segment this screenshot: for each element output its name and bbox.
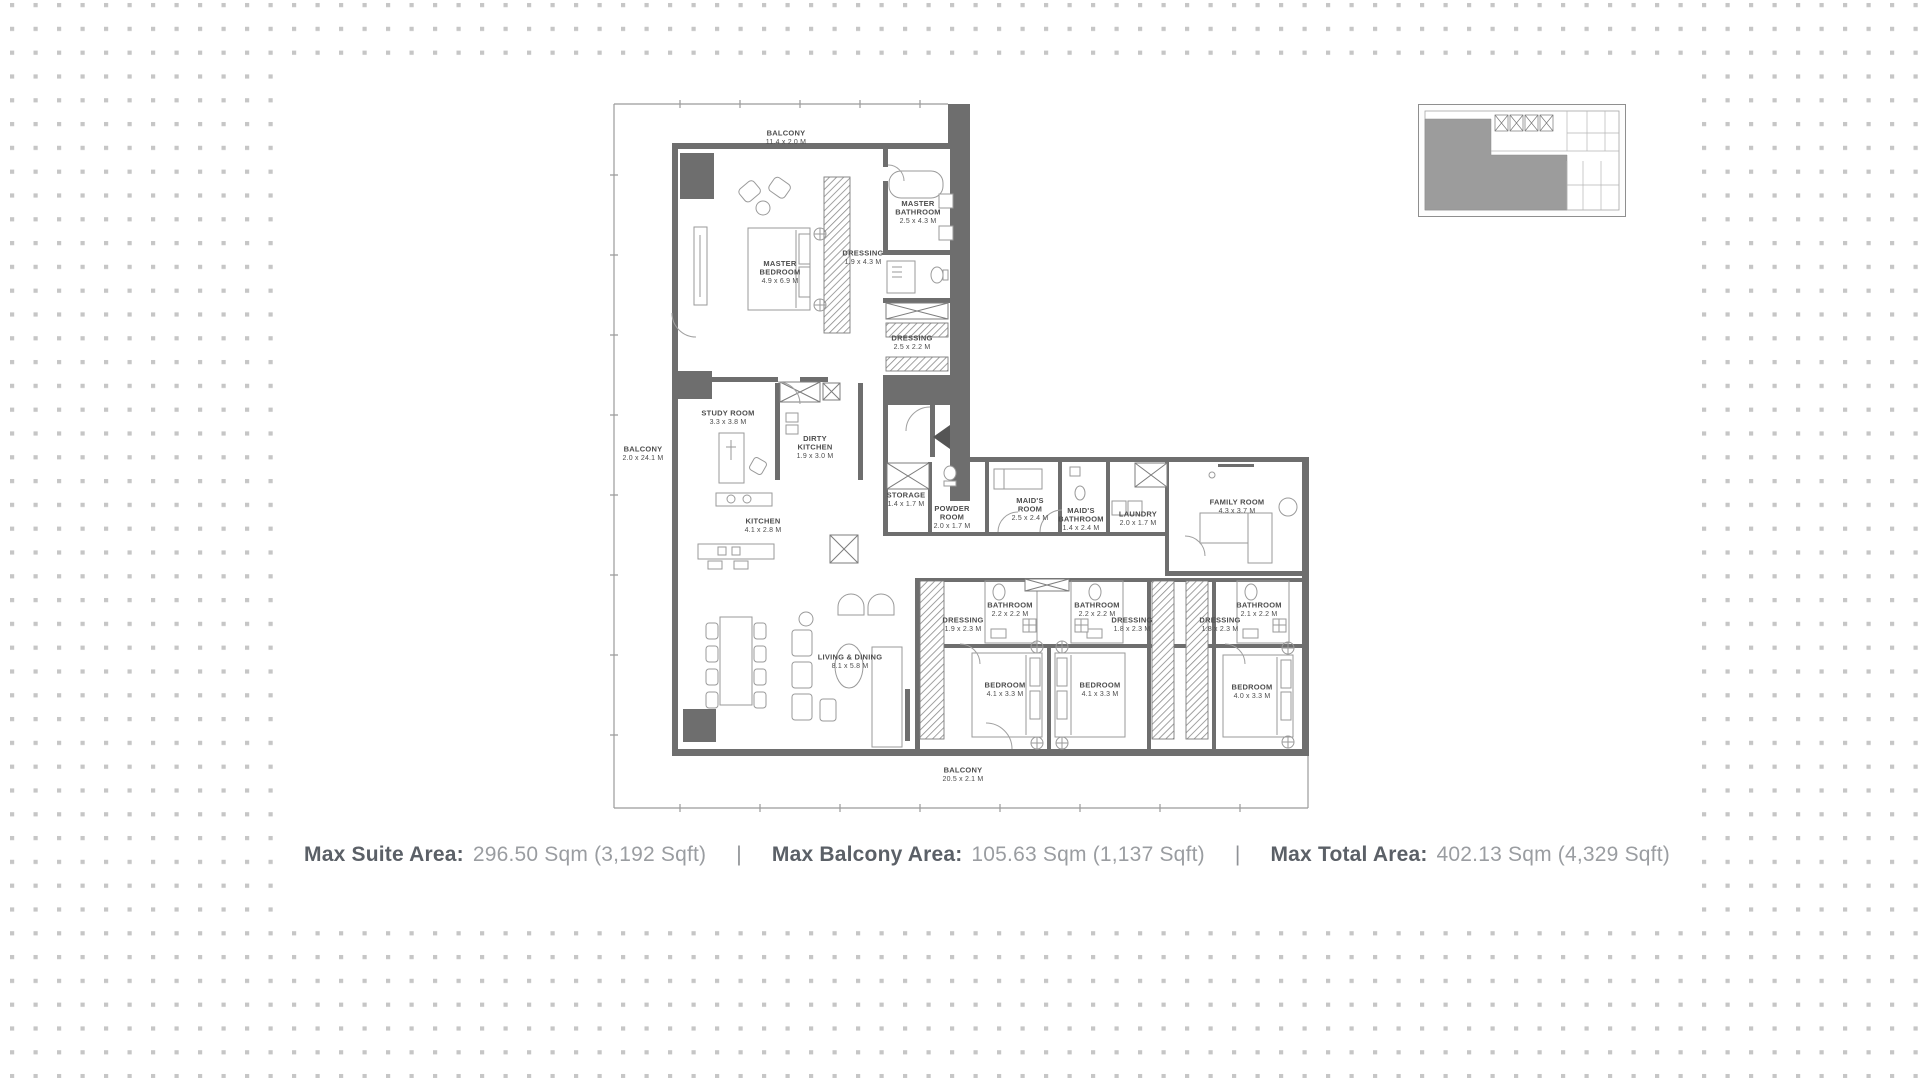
room-label: DRESSING <box>891 333 932 342</box>
max-balcony-area-value: 105.63 Sqm (1,137 Sqft) <box>971 843 1204 867</box>
max-suite-area-value: 296.50 Sqm (3,192 Sqft) <box>473 843 706 867</box>
room-label: BEDROOM <box>760 268 801 277</box>
room-label: KITCHEN <box>745 516 780 525</box>
room-label: LAUNDRY <box>1119 509 1157 518</box>
room-label: 1.9 x 4.3 M <box>845 259 882 266</box>
room-label: BATHROOM <box>1236 600 1282 609</box>
balcony-label: BALCONY <box>767 128 806 137</box>
key-plan <box>1417 103 1627 218</box>
balcony-label: BALCONY <box>624 444 663 453</box>
room-label: 1.4 x 2.4 M <box>1063 525 1100 532</box>
floor-plan: MASTERBEDROOM4.9 x 6.9 MMASTERBATHROOM2.… <box>600 95 1320 815</box>
room-label: ROOM <box>1018 505 1042 514</box>
room-label: 4.0 x 3.3 M <box>1234 693 1271 700</box>
room-label: BEDROOM <box>985 680 1026 689</box>
max-balcony-area: Max Balcony Area: 105.63 Sqm (1,137 Sqft… <box>772 843 1205 867</box>
max-suite-area: Max Suite Area: 296.50 Sqm (3,192 Sqft) <box>304 843 706 867</box>
room-label: 4.3 x 3.7 M <box>1219 508 1256 515</box>
room-label: STORAGE <box>887 490 926 499</box>
room-label: FAMILY ROOM <box>1210 497 1265 506</box>
room-label: 3.3 x 3.8 M <box>710 419 747 426</box>
max-total-area: Max Total Area: 402.13 Sqm (4,329 Sqft) <box>1270 843 1669 867</box>
room-label: 1.9 x 2.3 M <box>945 626 982 633</box>
room-label: 4.1 x 3.3 M <box>987 691 1024 698</box>
room-label: DRESSING <box>1199 615 1240 624</box>
max-balcony-area-label: Max Balcony Area: <box>772 843 963 867</box>
room-label: 2.5 x 4.3 M <box>900 218 937 225</box>
balcony-label: 11.4 x 2.0 M <box>766 139 806 146</box>
room-label: BATHROOM <box>895 208 941 217</box>
room-label: 1.4 x 1.7 M <box>888 501 925 508</box>
room-label: BATHROOM <box>1074 600 1120 609</box>
room-label: DRESSING <box>842 248 883 257</box>
room-label: KITCHEN <box>797 443 832 452</box>
balcony-label: 2.0 x 24.1 M <box>623 455 664 462</box>
room-label: STUDY ROOM <box>701 408 754 417</box>
room-label: 2.2 x 2.2 M <box>992 611 1029 618</box>
room-label: BATHROOM <box>987 600 1033 609</box>
room-label: DRESSING <box>942 615 983 624</box>
room-label: 1.8 x 2.3 M <box>1114 626 1151 633</box>
max-total-area-label: Max Total Area: <box>1270 843 1427 867</box>
room-label: 2.2 x 2.2 M <box>1079 611 1116 618</box>
stats-separator: | <box>1235 843 1241 867</box>
room-label: 2.0 x 1.7 M <box>934 523 971 530</box>
room-label: 8.1 x 5.8 M <box>832 663 869 670</box>
entrance-marker <box>933 425 950 449</box>
balcony-label: 20.5 x 2.1 M <box>943 776 984 783</box>
room-label: 4.1 x 3.3 M <box>1082 691 1119 698</box>
room-label: 4.9 x 6.9 M <box>762 278 799 285</box>
area-stats-bar: Max Suite Area: 296.50 Sqm (3,192 Sqft) … <box>283 843 1691 867</box>
stats-separator: | <box>736 843 742 867</box>
room-label: BATHROOM <box>1058 515 1104 524</box>
room-label: 4.1 x 2.8 M <box>745 527 782 534</box>
room-label: 1.8 x 2.3 M <box>1202 626 1239 633</box>
room-label: 1.9 x 3.0 M <box>797 453 834 460</box>
room-label: 2.1 x 2.2 M <box>1241 611 1278 618</box>
room-label: BEDROOM <box>1080 680 1121 689</box>
room-label: 2.0 x 1.7 M <box>1120 520 1157 527</box>
max-total-area-value: 402.13 Sqm (4,329 Sqft) <box>1437 843 1670 867</box>
room-label: BEDROOM <box>1232 682 1273 691</box>
room-label: ROOM <box>940 513 964 522</box>
shaft-boxes <box>780 303 1167 591</box>
max-suite-area-label: Max Suite Area: <box>304 843 464 867</box>
room-label: 2.5 x 2.2 M <box>894 344 931 351</box>
room-label: 2.5 x 2.4 M <box>1012 515 1049 522</box>
room-label: LIVING & DINING <box>818 652 883 661</box>
balcony-label: BALCONY <box>944 765 983 774</box>
room-label: DRESSING <box>1111 615 1152 624</box>
